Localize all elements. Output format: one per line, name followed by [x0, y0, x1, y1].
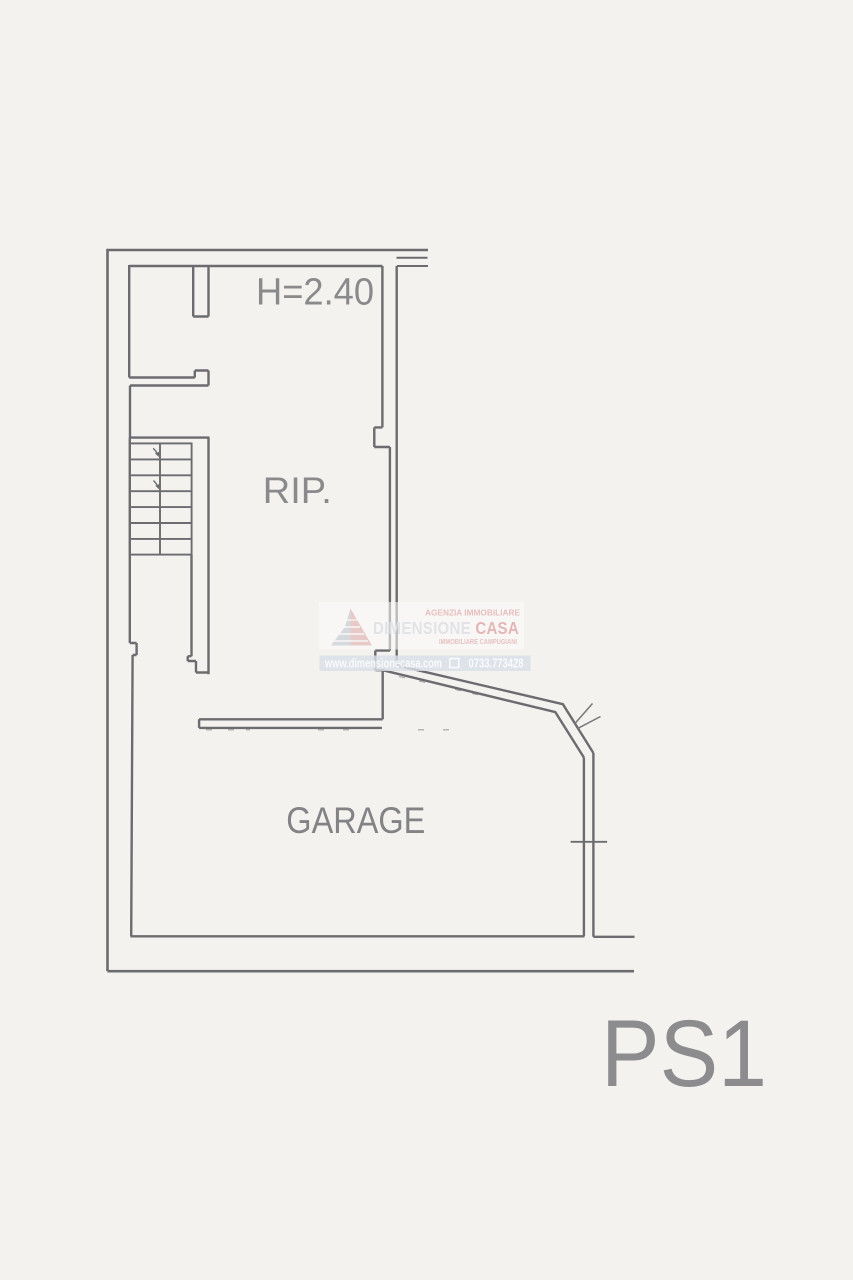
svg-text:0733.773428: 0733.773428 [469, 655, 524, 670]
svg-text:DIMENSIONE CASA: DIMENSIONE CASA [373, 618, 519, 638]
svg-text:IMMOBILIARE CAMPUGIANI: IMMOBILIARE CAMPUGIANI [439, 637, 517, 646]
svg-text:RIP.: RIP. [263, 469, 332, 511]
svg-text:H=2.40: H=2.40 [256, 272, 374, 314]
svg-text:GARAGE: GARAGE [286, 800, 425, 841]
svg-text:PS1: PS1 [601, 1001, 767, 1107]
svg-text:www.dimensionecasa.com: www.dimensionecasa.com [324, 655, 442, 670]
svg-text:AGENZIA IMMOBILIARE: AGENZIA IMMOBILIARE [425, 609, 521, 618]
